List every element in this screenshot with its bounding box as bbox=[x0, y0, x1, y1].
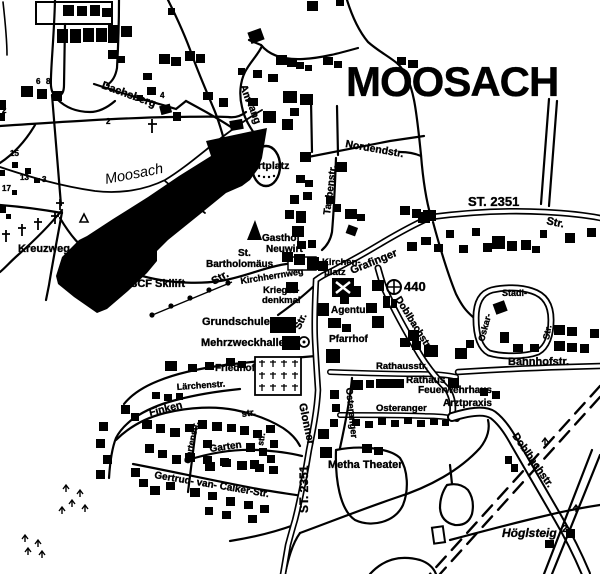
svg-text:Mehrzweckhalle: Mehrzweckhalle bbox=[201, 337, 285, 349]
svg-text:Sportplatz: Sportplatz bbox=[238, 160, 289, 172]
svg-text:440: 440 bbox=[404, 279, 426, 294]
svg-text:3: 3 bbox=[42, 175, 47, 184]
svg-text:Feuerwehrhaus: Feuerwehrhaus bbox=[418, 385, 492, 396]
svg-text:ST. 2351: ST. 2351 bbox=[297, 465, 311, 513]
svg-text:P: P bbox=[329, 352, 336, 364]
svg-text:platz: platz bbox=[324, 267, 346, 278]
svg-text:2: 2 bbox=[562, 524, 568, 535]
svg-text:Neuwirt: Neuwirt bbox=[266, 244, 303, 255]
svg-text:Pfarrhof: Pfarrhof bbox=[329, 334, 369, 345]
svg-text:MOOSACH: MOOSACH bbox=[346, 58, 558, 105]
svg-text:17: 17 bbox=[2, 184, 11, 193]
svg-text:Gasthof: Gasthof bbox=[262, 233, 300, 244]
svg-text:Bahnhofstr.: Bahnhofstr. bbox=[508, 356, 569, 368]
svg-text:SCF Skilift: SCF Skilift bbox=[130, 278, 185, 290]
svg-text:denkmal: denkmal bbox=[262, 295, 301, 306]
svg-text:Agentur: Agentur bbox=[331, 305, 369, 316]
svg-text:Osteranger: Osteranger bbox=[376, 403, 427, 414]
svg-text:4: 4 bbox=[160, 91, 165, 100]
svg-text:Arztpraxis: Arztpraxis bbox=[443, 398, 492, 409]
svg-text:Kreuzweg: Kreuzweg bbox=[18, 243, 70, 255]
svg-text:Friedhof: Friedhof bbox=[215, 363, 256, 374]
svg-text:Rathausstr.: Rathausstr. bbox=[376, 361, 428, 372]
svg-text:ST. 2351: ST. 2351 bbox=[468, 194, 519, 209]
svg-text:8: 8 bbox=[46, 77, 51, 86]
svg-text:2: 2 bbox=[106, 117, 111, 126]
svg-text:Stadl-: Stadl- bbox=[502, 288, 527, 298]
svg-text:St.: St. bbox=[238, 248, 251, 259]
svg-text:15: 15 bbox=[10, 149, 19, 158]
svg-text:Bartholomäus: Bartholomäus bbox=[206, 259, 274, 270]
svg-text:Höglsteig: Höglsteig bbox=[502, 526, 557, 540]
svg-text:Metha Theater: Metha Theater bbox=[328, 459, 403, 471]
svg-text:Grundschule: Grundschule bbox=[202, 316, 270, 328]
svg-text:str.: str. bbox=[241, 407, 257, 420]
svg-text:13: 13 bbox=[20, 173, 29, 182]
svg-text:2: 2 bbox=[2, 106, 7, 115]
svg-text:6: 6 bbox=[36, 77, 41, 86]
